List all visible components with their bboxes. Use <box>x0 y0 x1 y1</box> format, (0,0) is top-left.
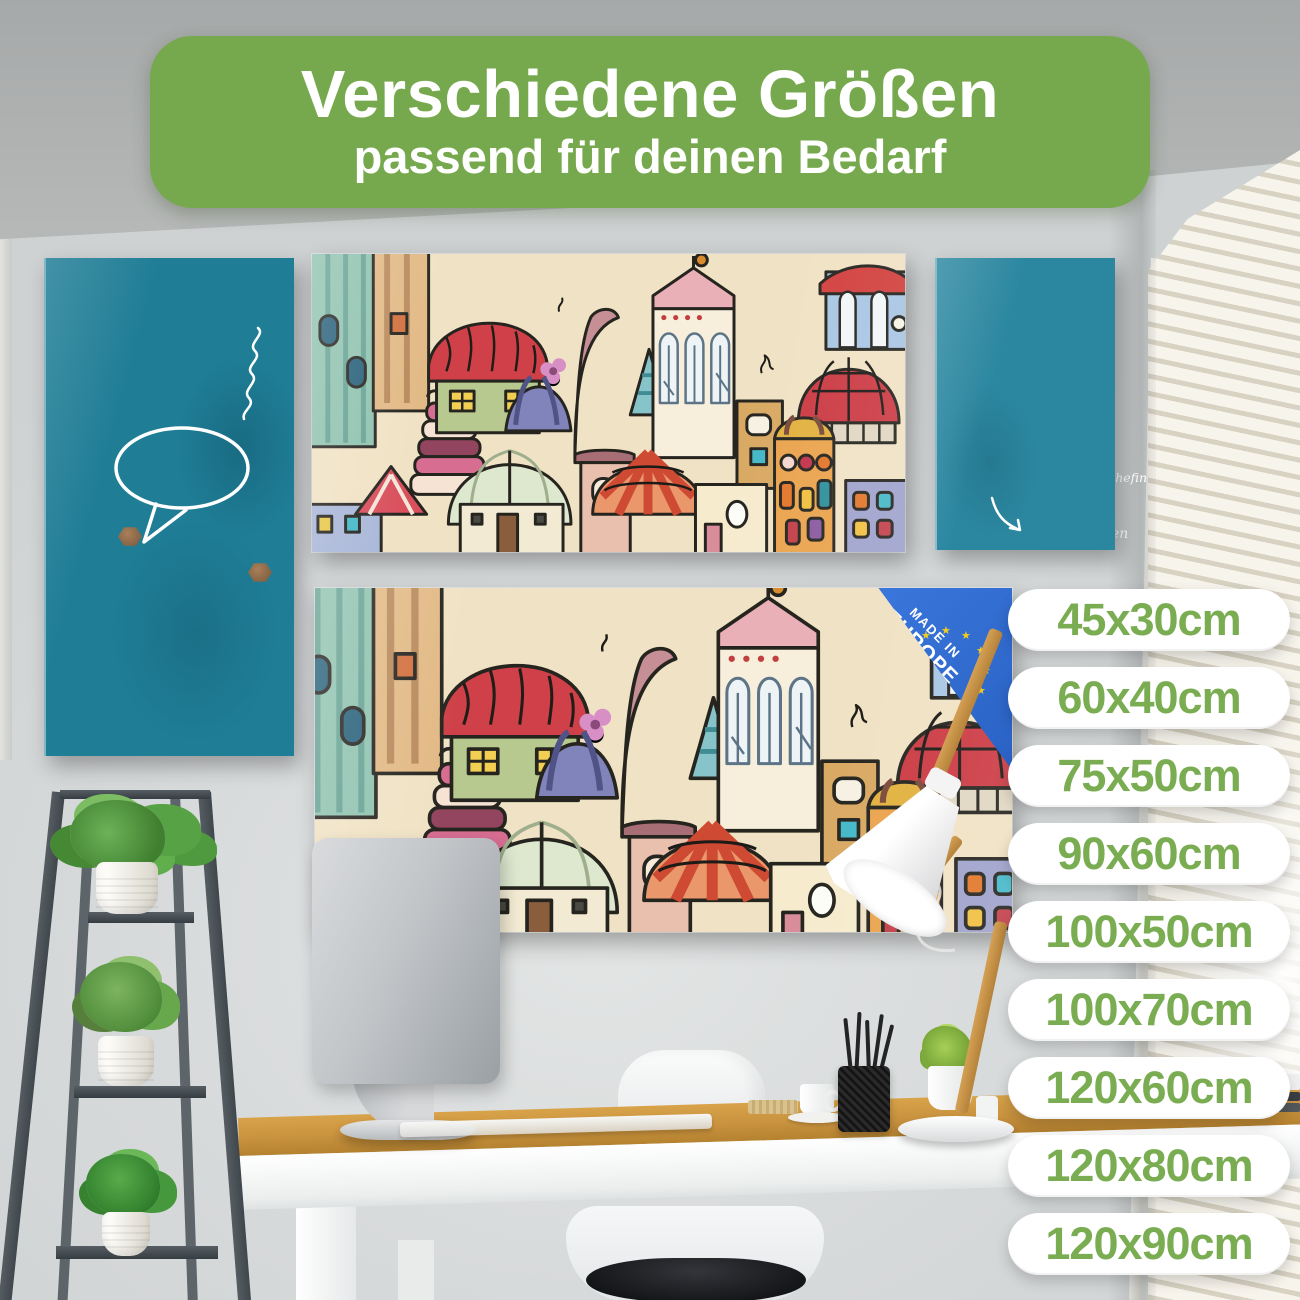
notebook <box>748 1100 798 1114</box>
eu-star-icon: ★ <box>941 624 951 637</box>
shelf-top-bar <box>60 790 210 799</box>
plant-pot-3 <box>102 1212 150 1256</box>
size-option-100x70: 100x70cm <box>1008 979 1290 1041</box>
glass-reflection <box>312 254 905 552</box>
artwork-board-top <box>312 254 905 552</box>
squiggle-doodle <box>244 328 260 419</box>
headline-banner: Verschiedene Größen passend für deinen B… <box>150 36 1150 208</box>
arrow-doodle <box>988 496 1036 540</box>
desk-leg-back <box>398 1240 434 1300</box>
headline-subtitle: passend für deinen Bedarf <box>354 130 947 184</box>
eu-star-icon: ★ <box>921 629 931 642</box>
shelf-board-2 <box>74 1086 206 1098</box>
size-option-120x60: 120x60cm <box>1008 1057 1290 1119</box>
size-option-100x50: 100x50cm <box>1008 901 1290 963</box>
plant-pot-1 <box>96 862 158 914</box>
size-option-120x90: 120x90cm <box>1008 1213 1290 1275</box>
lamp-base <box>898 1116 1014 1142</box>
size-option-60x40: 60x40cm <box>1008 667 1290 729</box>
product-scene: Kaffee Milch Brot Annika Friedrich 0123 … <box>0 0 1300 1300</box>
imac-back <box>312 838 500 1084</box>
size-option-75x50: 75x50cm <box>1008 745 1290 807</box>
size-option-120x80: 120x80cm <box>1008 1135 1290 1197</box>
chair-cushion <box>586 1258 806 1300</box>
board-doodles <box>44 258 292 756</box>
plant-bush-bottom <box>86 1154 160 1216</box>
coffee-mug <box>800 1084 834 1114</box>
size-option-90x60: 90x60cm <box>1008 823 1290 885</box>
size-option-45x30: 45x30cm <box>1008 589 1290 651</box>
headline-title: Verschiedene Größen <box>301 60 999 130</box>
plant-pot-2 <box>98 1036 154 1086</box>
pen-holder <box>838 1066 890 1132</box>
speech-bubble-outline <box>116 428 248 508</box>
eu-star-icon: ★ <box>961 629 971 642</box>
